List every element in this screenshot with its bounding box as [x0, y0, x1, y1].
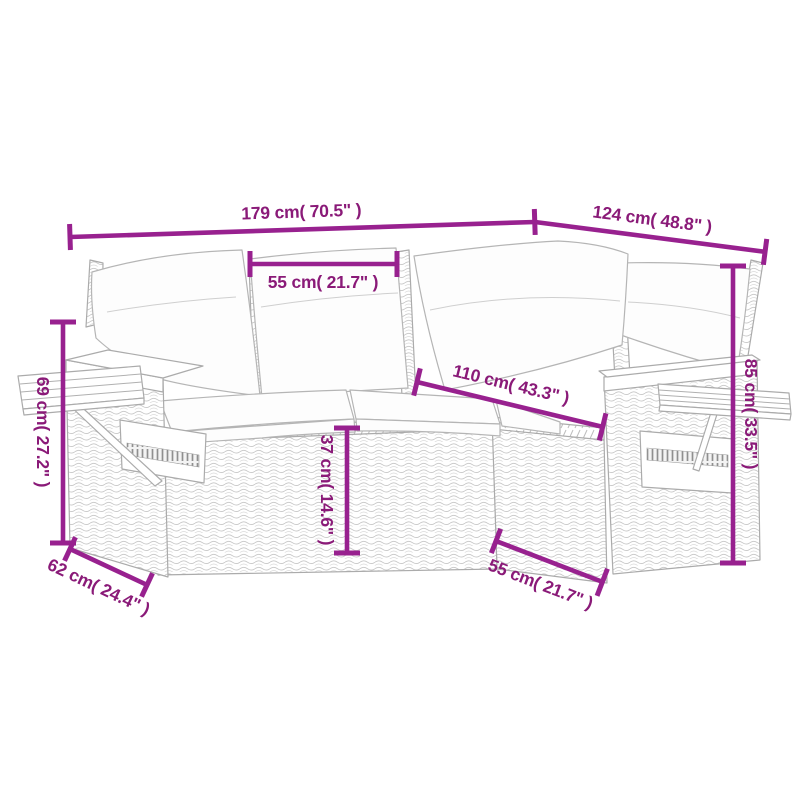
- back-pillow-middle: [250, 248, 408, 398]
- dimension-line: [70, 222, 535, 237]
- dimension-label: 85 cm( 33.5" ): [741, 359, 761, 470]
- product-dimension-diagram: 179 cm( 70.5" ) 124 cm( 48.8" ) 55 cm( 2…: [0, 0, 800, 800]
- sofa-illustration: [18, 241, 791, 583]
- diagram-canvas: 179 cm( 70.5" ) 124 cm( 48.8" ) 55 cm( 2…: [0, 0, 800, 800]
- dimension-total-length: 179 cm( 70.5" ): [69, 194, 535, 250]
- dimension-tick: [70, 224, 71, 250]
- dimension-tick: [763, 239, 766, 265]
- back-pillow-right: [618, 263, 750, 371]
- dimension-label: 37 cm( 14.6" ): [317, 435, 337, 546]
- dimension-label: 69 cm( 27.2" ): [33, 377, 53, 488]
- sofa-base-right: [492, 417, 607, 583]
- back-pillow-corner: [414, 241, 628, 390]
- dimension-label: 179 cm( 70.5" ): [241, 200, 362, 224]
- dimension-tick: [599, 413, 606, 440]
- dimension-label: 55 cm( 21.7" ): [268, 272, 379, 292]
